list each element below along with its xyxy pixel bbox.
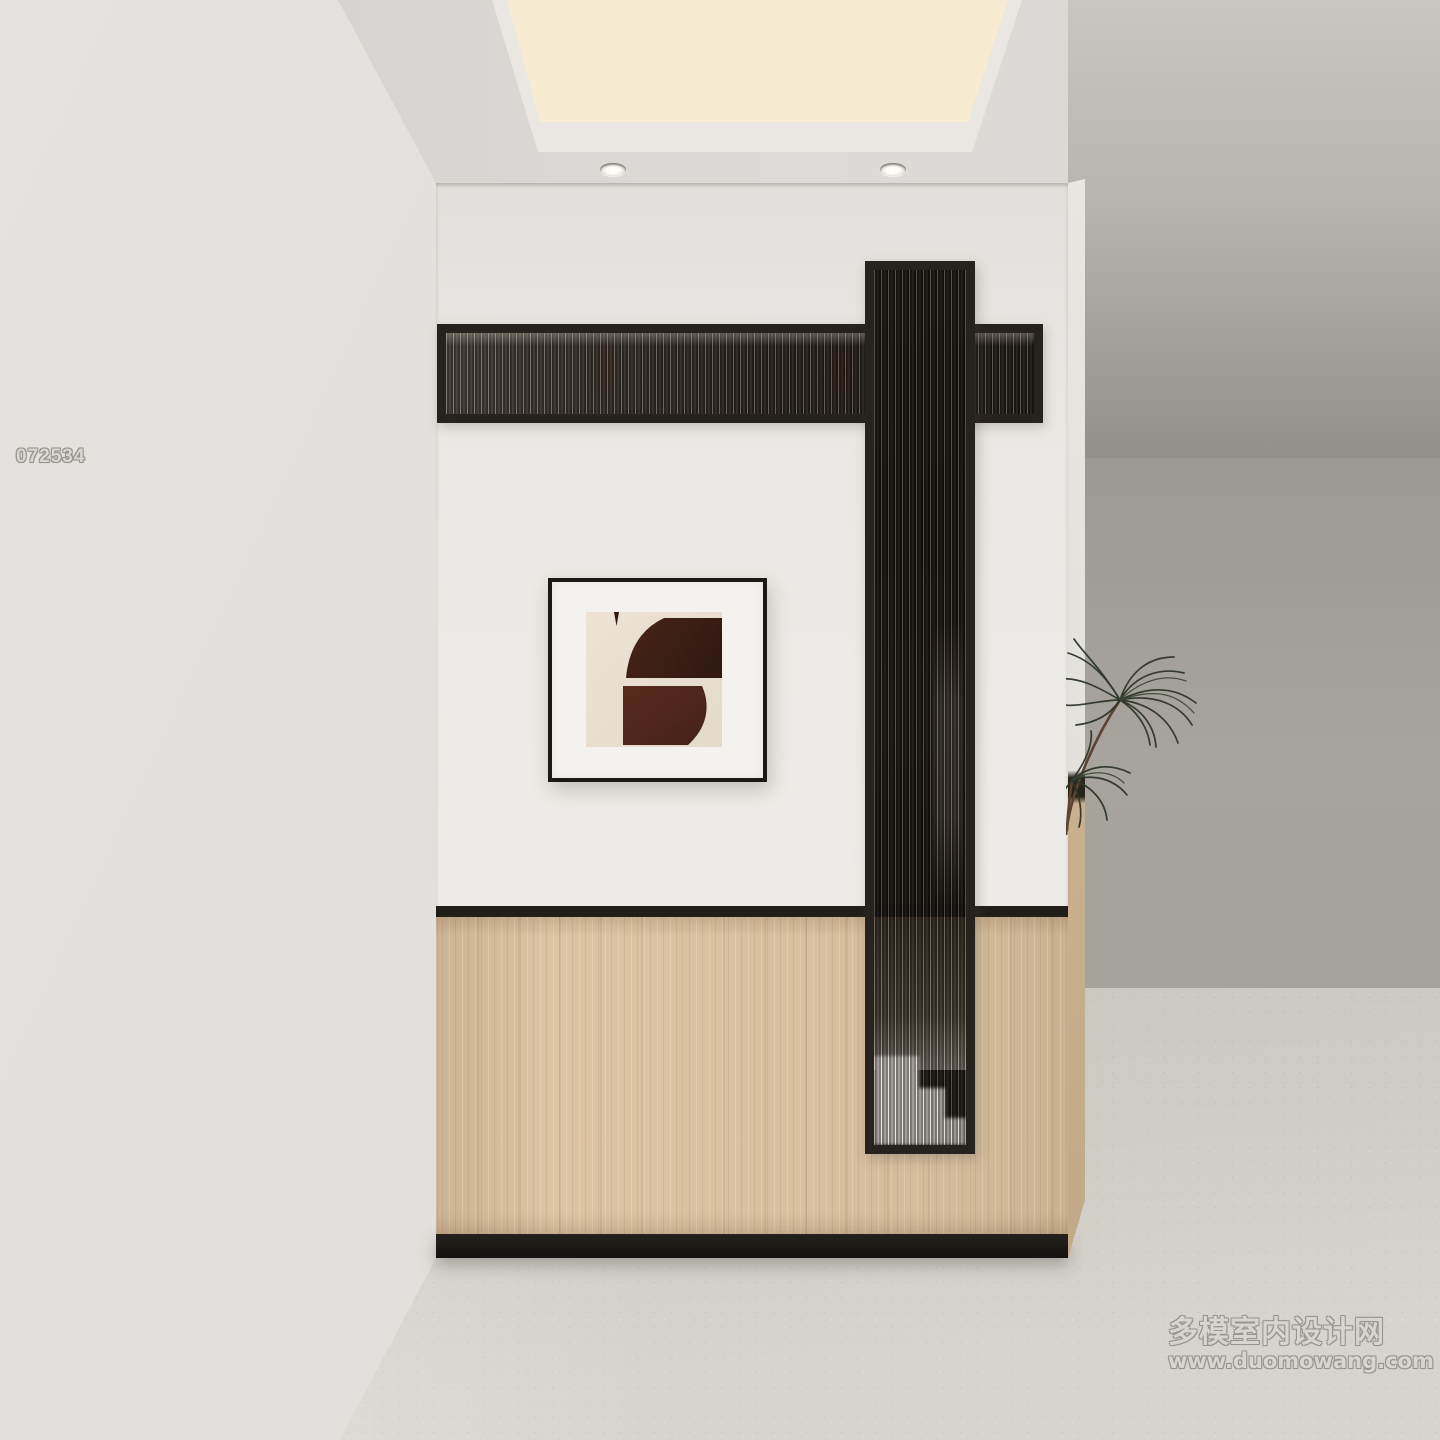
watermark-site-name: 多模室内设计网 xyxy=(1168,1316,1434,1349)
v-screen-ribs xyxy=(874,270,966,1145)
artwork-frame xyxy=(548,578,767,782)
watermark-id: 072534 xyxy=(16,446,85,468)
interior-render: 072534 多模室内设计网 www.duomowang.com xyxy=(0,0,1440,1440)
art-shape-bottom xyxy=(623,686,707,745)
artwork-canvas xyxy=(586,612,722,747)
watermark-site: 多模室内设计网 www.duomowang.com xyxy=(1168,1316,1434,1374)
abstract-art xyxy=(586,612,722,747)
black-baseboard xyxy=(436,1234,1068,1258)
downlight-right xyxy=(880,163,906,176)
downlight-left xyxy=(600,163,626,176)
plant-leaves xyxy=(1066,639,1196,827)
vertical-slat-screen xyxy=(865,261,975,1154)
watermark-site-url: www.duomowang.com xyxy=(1168,1349,1434,1374)
palm-plant xyxy=(1066,615,1216,835)
distant-ceiling xyxy=(1068,0,1440,458)
